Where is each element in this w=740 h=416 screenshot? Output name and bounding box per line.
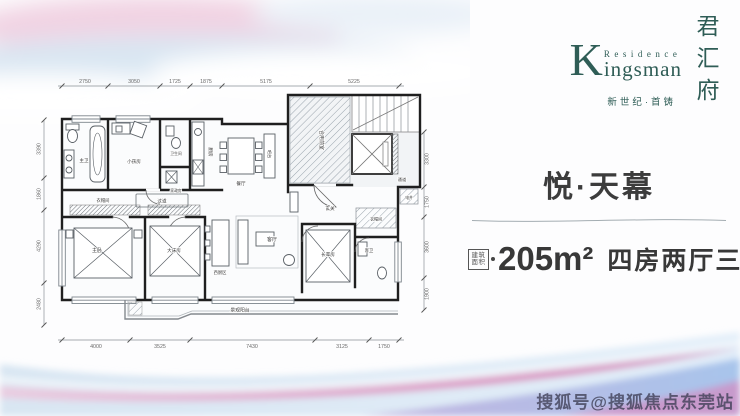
dim-left-3: 2480: [37, 298, 43, 310]
room-label-master-bath: 主卫: [79, 157, 89, 163]
brand-k-initial: K: [570, 42, 603, 78]
dim-top-1: 3050: [128, 79, 140, 85]
room-label-dining: 餐厅: [236, 180, 246, 187]
floorplan: 主卫 小孩房 卫生间 家政房 厨房 餐厅 吧台 合用前室 通道 电井 玄关 衣帽…: [28, 72, 464, 350]
dim-right-2: 3600: [425, 241, 431, 253]
dim-right-3: 1900: [425, 288, 431, 300]
room-label-vestibule: 合用前室: [318, 130, 325, 150]
room-label-utility: 家政房: [170, 188, 182, 193]
title-divider: [468, 216, 730, 224]
foyer-cabinet-icon: [290, 192, 298, 212]
room-label-elder-room: 长辈房: [321, 251, 335, 258]
room-label-shaft: 电井: [405, 195, 413, 200]
room-label-passage: 通道: [398, 176, 407, 183]
wardrobe-strip-2: [148, 205, 200, 215]
dim-top-2: 1725: [169, 79, 181, 85]
bathtub-icon: [90, 126, 105, 182]
dining-table-icon: [220, 138, 262, 174]
planter-icon: [129, 302, 142, 315]
area-badge-line2: 面积: [472, 259, 486, 267]
dim-bottom-0: 4000: [90, 344, 102, 350]
light-wave-shape: [250, 0, 470, 34]
dim-top-3: 1875: [200, 79, 212, 85]
room-label-hallway: 过道: [157, 198, 167, 205]
brand-logo: 君汇府 K Residence ingsman 新世纪·首铸: [546, 8, 724, 120]
dim-top-0: 2750: [79, 79, 91, 85]
dim-right-1: 1750: [425, 196, 431, 208]
room-label-bathroom: 卫生间: [170, 151, 182, 156]
room-label-balcony: 景观阳台: [230, 307, 249, 314]
dim-right-0: 3300: [425, 153, 431, 165]
unit-title: 悦·天幕: [468, 162, 730, 206]
room-label-second-bedroom: 大床房: [167, 247, 181, 254]
brand-tagline: 新世纪·首铸: [607, 94, 676, 108]
pink-wave-shape: [0, 0, 350, 56]
laundry-icon: [166, 171, 177, 183]
room-label-living: 客厅: [267, 236, 277, 243]
room-label-foyer: 玄关: [325, 205, 335, 212]
dim-left-0: 3390: [37, 143, 43, 155]
brand-latin-name: K Residence ingsman: [570, 42, 682, 78]
area-badge-line1: 建筑: [472, 252, 486, 260]
stairs-icon: [352, 95, 420, 132]
island-icon: [205, 220, 229, 266]
elevator-icon: [352, 134, 398, 174]
wardrobe-strip-1: [70, 205, 140, 215]
dim-left-2: 4290: [37, 240, 43, 252]
room-label-master-bedroom: 主卧: [92, 247, 102, 254]
vanity-icon: [64, 150, 74, 178]
room-label-kids-room: 小孩房: [127, 158, 141, 165]
room-label-guest-bath: 客卫: [365, 247, 374, 254]
unit-area-row: 建筑 面积 205m² 四房两厅三卫: [468, 240, 730, 278]
dim-bottom-2: 7430: [246, 344, 258, 350]
page-canvas: 主卫 小孩房 卫生间 家政房 厨房 餐厅 吧台 合用前室 通道 电井 玄关 衣帽…: [0, 0, 740, 416]
dim-top-5: 5225: [348, 79, 360, 85]
brand-kingsman-rest: ingsman: [604, 60, 682, 78]
room-label-closet-b: 衣帽间: [370, 216, 382, 222]
unit-info: 悦·天幕 建筑 面积 205m² 四房两厅三卫: [468, 162, 730, 278]
brand-chinese-name: 君汇府: [688, 14, 722, 110]
dim-bottom-4: 1750: [378, 344, 390, 350]
badge-dot-icon: [491, 257, 495, 261]
watermark: 搜狐号@搜狐焦点东莞站: [536, 388, 734, 413]
room-label-bar: 吧台: [266, 150, 273, 158]
room-label-closet-a: 衣帽间: [97, 197, 110, 204]
toilet-icon: [66, 124, 79, 143]
kids-desk-icon: [112, 123, 130, 134]
area-value: 205m²: [498, 240, 593, 278]
rooms-description: 四房两厅三卫: [607, 241, 740, 277]
dim-bottom-3: 3125: [336, 344, 348, 350]
room-label-kitchen: 厨房: [207, 147, 214, 157]
master-bed-icon: [66, 228, 142, 278]
dim-bottom-1: 3525: [154, 344, 166, 350]
dim-left-1: 1860: [37, 188, 43, 200]
area-badge: 建筑 面积: [468, 249, 489, 270]
kitchen-counter-icon: [192, 122, 204, 186]
dim-top-4: 5175: [260, 79, 272, 85]
